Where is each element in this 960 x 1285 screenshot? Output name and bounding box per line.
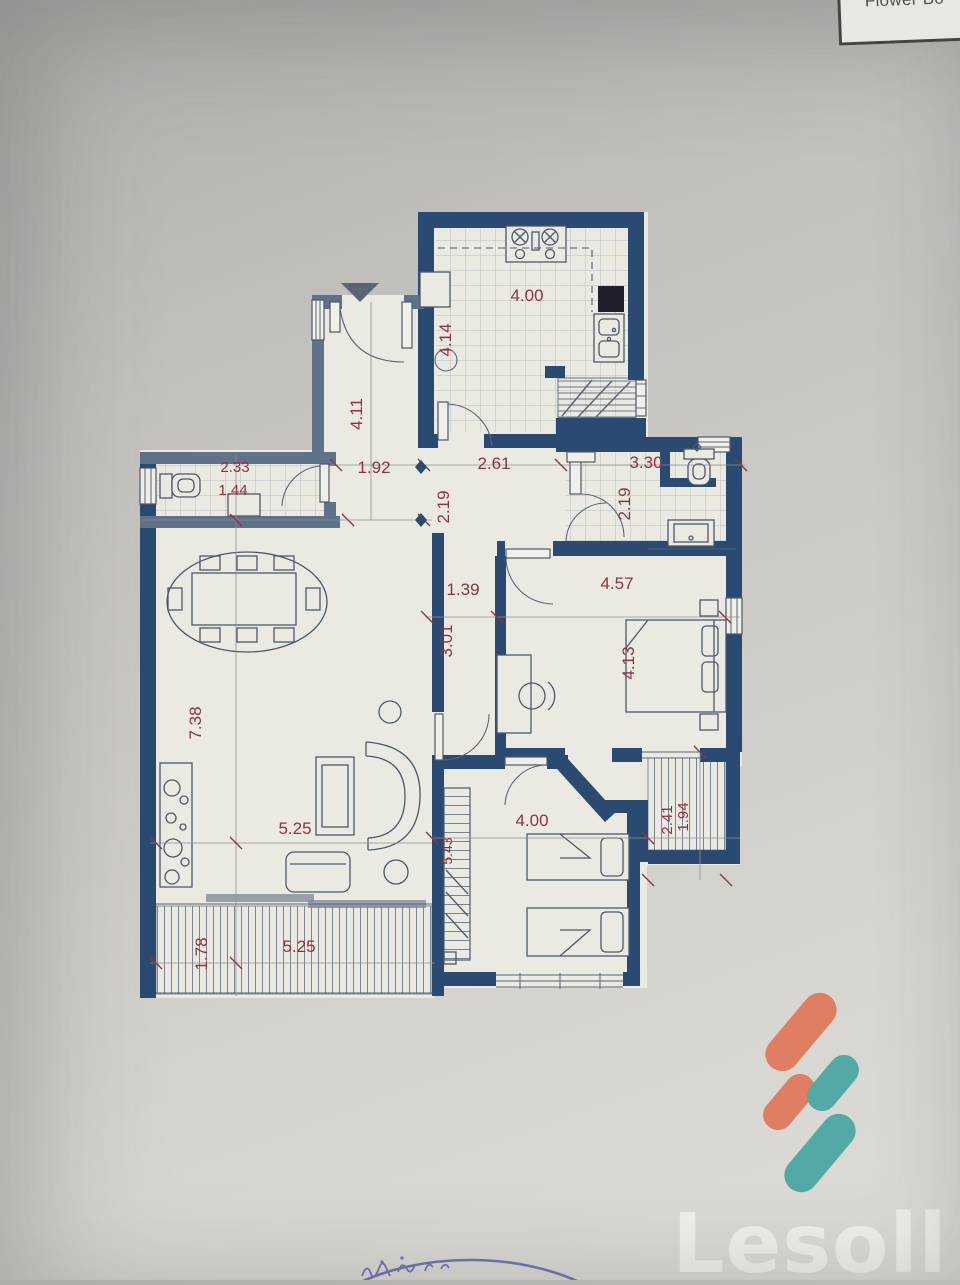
dimension-label: 5.43 (439, 837, 455, 864)
dimension-label: 5.25 (282, 937, 315, 956)
dimension-label: 4.57 (600, 574, 633, 593)
dimension-label: 4.11 (347, 398, 366, 430)
wardrobe-icon (444, 788, 470, 964)
window-corridor (312, 300, 324, 340)
dimension-label: 3.01 (437, 624, 456, 657)
dimension-label: 2.19 (434, 490, 453, 523)
double-bed-icon (626, 600, 726, 730)
dimension-label: 5.25 (278, 819, 311, 838)
window-master-bedroom (726, 598, 742, 634)
service-shaft (558, 378, 646, 418)
dimension-label: 1.92 (357, 458, 390, 477)
dimension-label: 1.39 (446, 580, 479, 599)
dimension-label: 1.94 (675, 802, 692, 831)
fridge-icon (598, 286, 624, 312)
photo-of-floorplan: { "document": { "flower_box_label": "Flo… (0, 0, 960, 1280)
wc-toilet-icon (160, 474, 200, 498)
stove-icon (506, 226, 566, 262)
dimension-label: 4.14 (436, 323, 455, 356)
dimension-label: 2.41 (659, 805, 676, 834)
kitchenette-counter (160, 763, 192, 887)
dimension-label: 3.30 (629, 453, 662, 472)
dimension-label: 1.44 (218, 482, 247, 499)
kitchen-niche (420, 272, 450, 307)
dimension-label: 2.19 (615, 487, 634, 520)
lesoll-icon (757, 986, 865, 1199)
dimension-label: 4.00 (515, 811, 548, 830)
stamp (302, 1256, 638, 1280)
single-bed-2 (527, 908, 629, 956)
dimension-label: 7.38 (186, 706, 205, 739)
dimension-label: 1.78 (192, 937, 211, 970)
dimension-label: 4.13 (619, 646, 638, 679)
dimension-label: 2.61 (477, 454, 510, 473)
dimension-label: 2.33 (220, 459, 249, 476)
floor-plan: 4.004.144.111.922.331.442.612.193.302.19… (0, 0, 960, 1280)
dimension-label: 4.00 (510, 286, 543, 305)
sink-icon (594, 314, 624, 362)
flower-box-label: Flower Bo (837, 0, 960, 46)
window-bedroom2 (496, 973, 623, 989)
single-bed-1 (527, 834, 629, 880)
lesoll-logo-text: Lesoll (672, 1197, 947, 1280)
flower-box-text: Flower Bo (864, 0, 944, 12)
lesoll-watermark: Lesoll (672, 986, 947, 1280)
toilet-icon (684, 443, 714, 485)
window-wc (140, 468, 156, 504)
